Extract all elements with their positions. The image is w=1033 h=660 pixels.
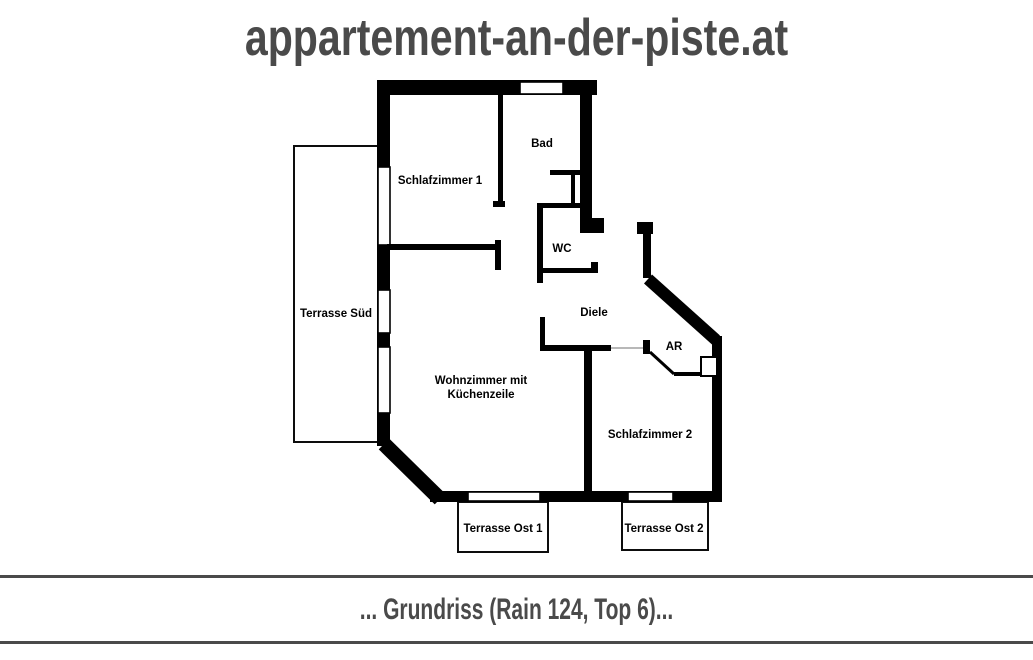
wall-wc-south-cap [591, 262, 598, 273]
wall-sz1-south-cap [495, 240, 501, 270]
room-label-ar: AR [666, 341, 683, 353]
room-label-terrasse-ost-1: Terrasse Ost 1 [463, 523, 543, 535]
wall-diele-west [540, 317, 545, 349]
wall-diele-south [540, 345, 611, 351]
window-left-1 [378, 167, 390, 245]
room-label-terrasse-sued: Terrasse Süd [300, 308, 372, 320]
room-label-diele: Diele [580, 307, 608, 319]
room-label-schlafzimmer-2: Schlafzimmer 2 [608, 429, 692, 441]
door-ghost-sz2 [611, 347, 644, 349]
wall-wc-north [537, 203, 583, 208]
wall-bad-south-stub [550, 170, 587, 175]
wall-wc-south [543, 268, 593, 273]
wall-entrance-cap [637, 222, 653, 234]
room-label-wc: WC [552, 243, 571, 255]
wall-entrance [643, 233, 651, 278]
wall-sz1-south [387, 244, 497, 250]
window-left-2 [378, 290, 390, 333]
room-label-schlafzimmer-1: Schlafzimmer 1 [398, 175, 483, 187]
wall-sz1-bad-tick [493, 201, 505, 207]
niche-right-wall [701, 357, 717, 376]
room-label-wohnzimmer-line2: Küchenzeile [447, 389, 514, 401]
wall-sz1-bad [498, 95, 503, 205]
wall-ar-stub [643, 340, 650, 354]
floorplan: Schlafzimmer 1 Bad WC Diele AR Wohnzimme… [0, 0, 1033, 660]
wall-bad-east [580, 88, 592, 219]
footer-rule-bottom [0, 641, 1033, 644]
window-bottom-2 [628, 492, 673, 501]
footer-caption: ... Grundriss (Rain 124, Top 6)... [155, 589, 878, 631]
door-leaf-bad [571, 175, 575, 204]
wall-wc-west [537, 203, 543, 283]
window-left-3 [378, 347, 390, 413]
room-label-terrasse-ost-2: Terrasse Ost 2 [624, 523, 703, 535]
wall-diagonal-southwest [384, 444, 440, 499]
floorplan-page: appartement-an-der-piste.at [0, 0, 1033, 660]
wall-wz-sz2 [584, 348, 592, 493]
window-bottom-1 [468, 492, 540, 501]
terrace-sued-outline [294, 146, 379, 442]
room-label-wohnzimmer-line1: Wohnzimmer mit [435, 375, 528, 387]
room-label-bad: Bad [531, 138, 553, 150]
wall-bad-east-foot [580, 218, 604, 233]
wall-top [377, 80, 597, 95]
door-leaf-ar [650, 352, 674, 374]
footer-rule-top [0, 575, 1033, 578]
window-top [520, 82, 563, 94]
wall-diagonal-northeast [648, 279, 716, 340]
